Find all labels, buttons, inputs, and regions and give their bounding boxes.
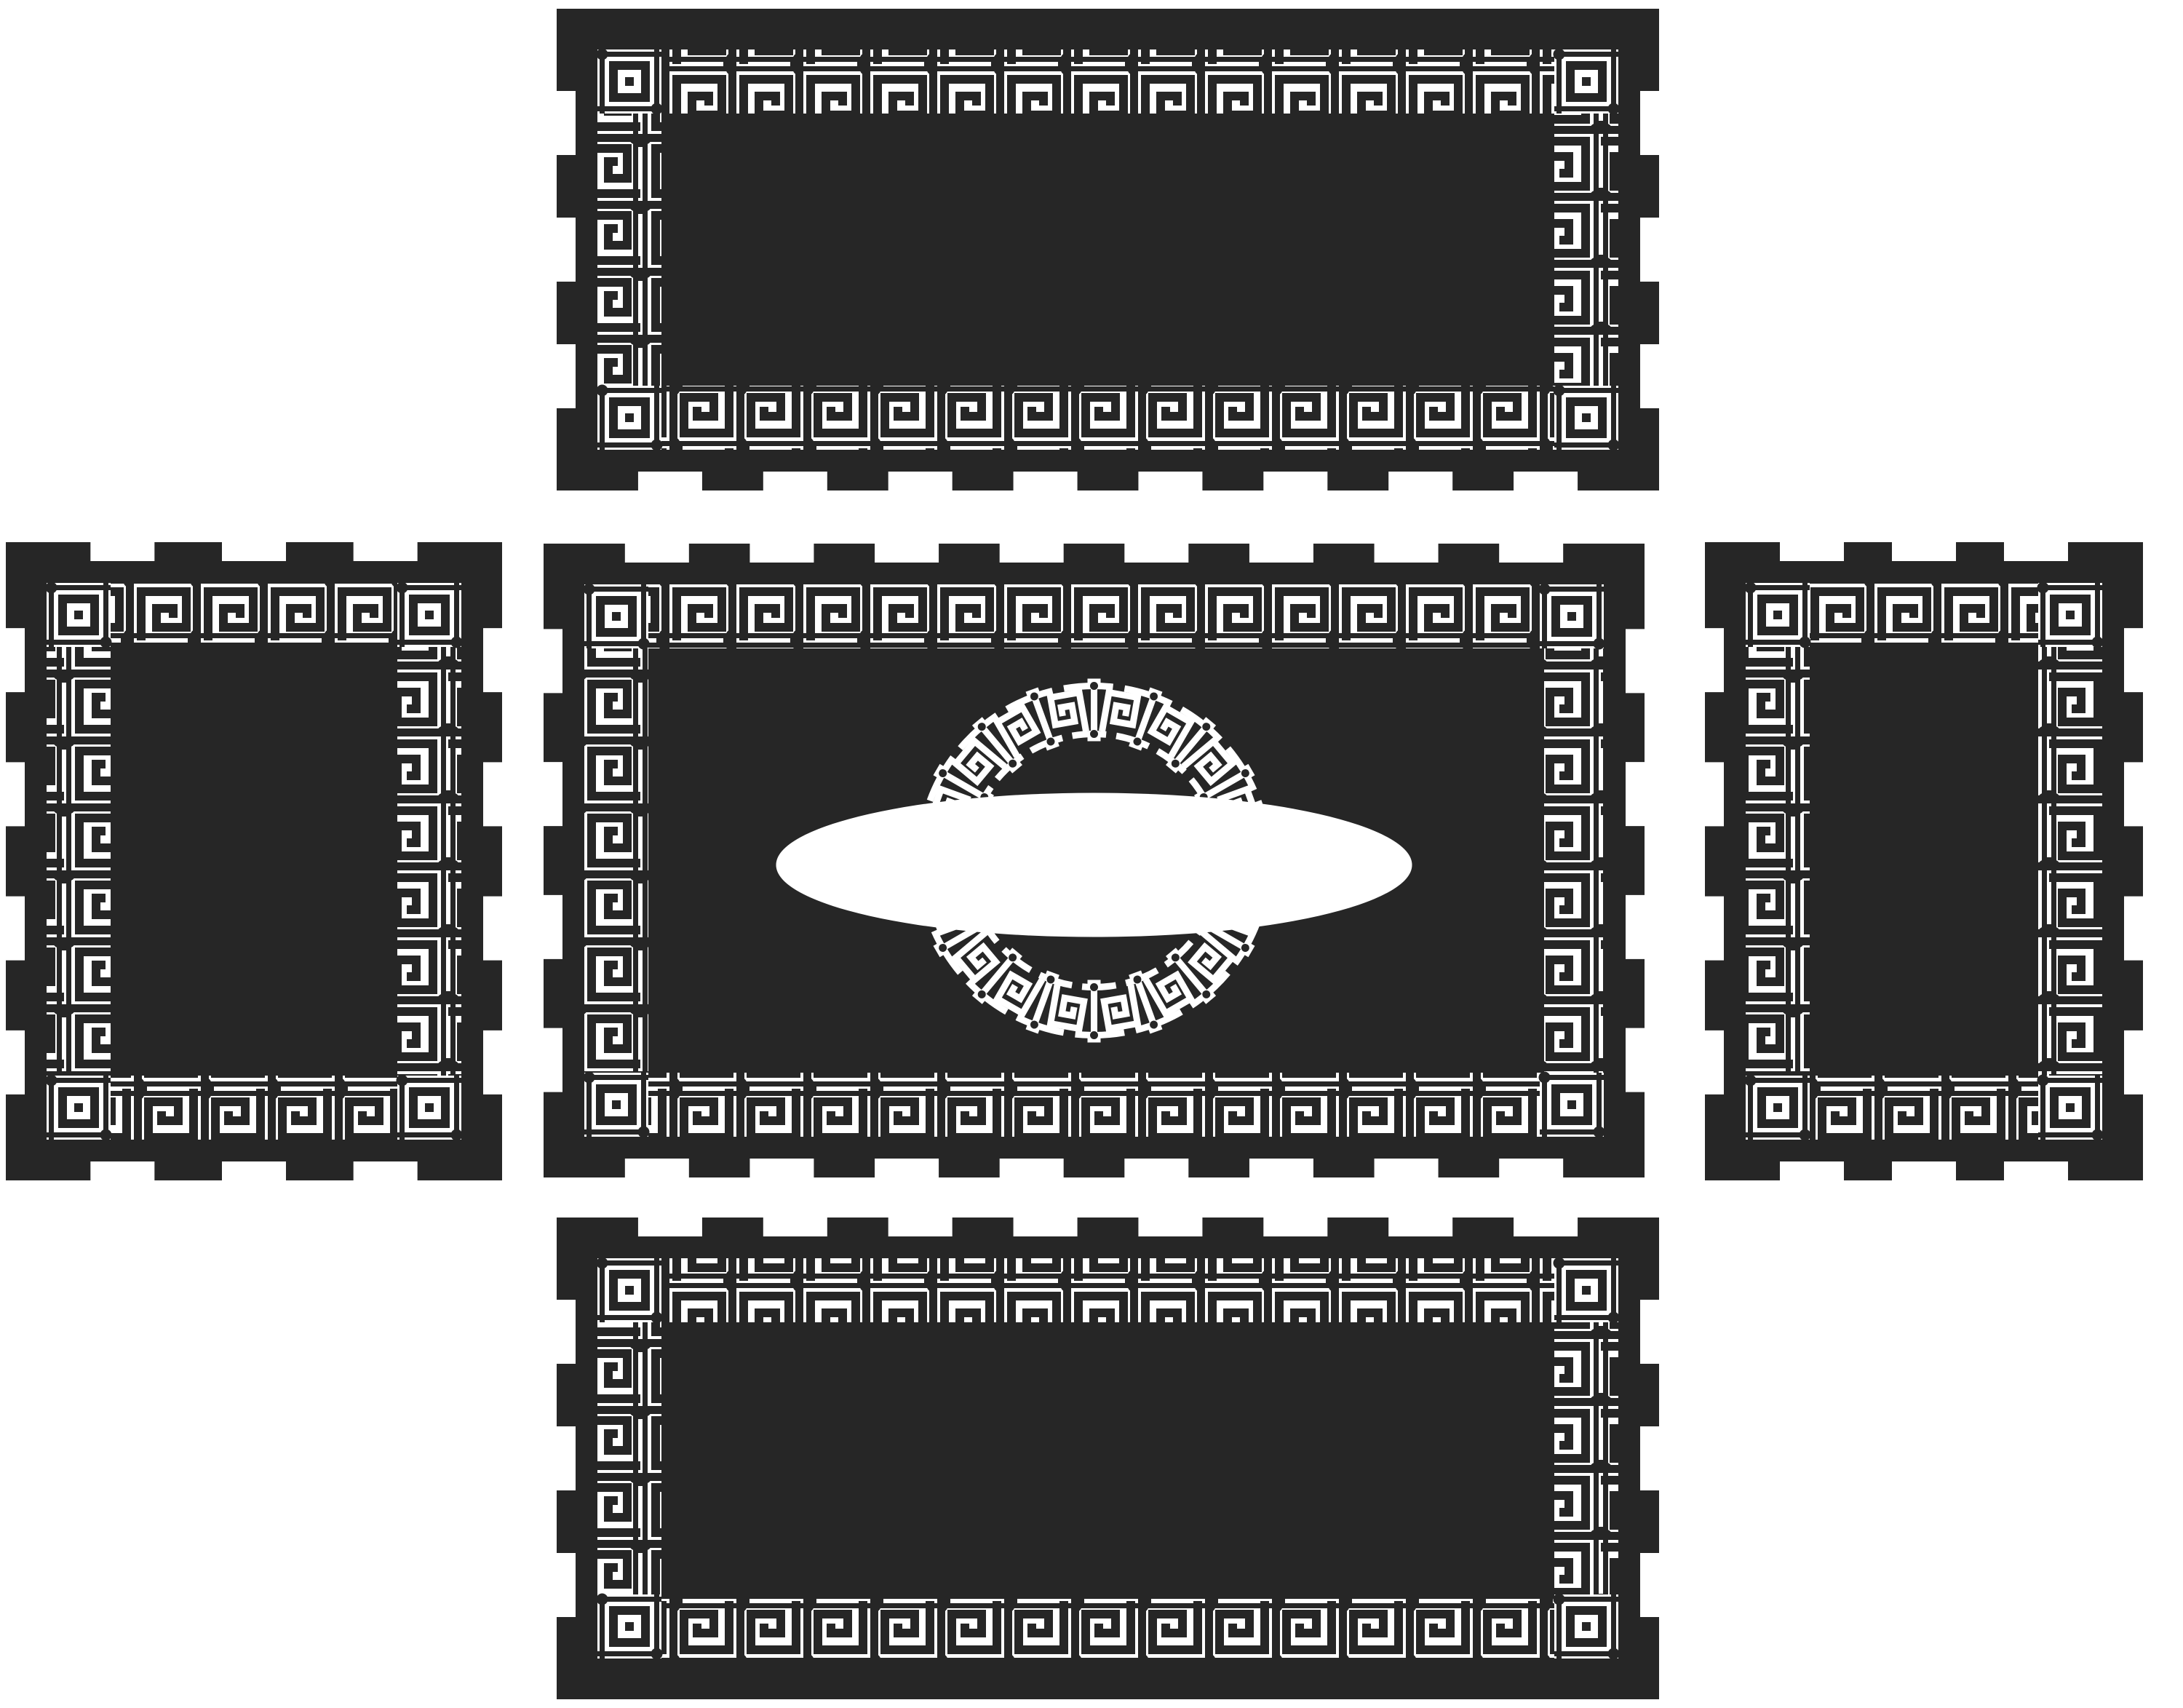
tissue-slot-oval (776, 793, 1412, 937)
panel-side-left (6, 542, 502, 1180)
panel-lid-top (557, 9, 1659, 490)
panel-side-right (1705, 542, 2143, 1180)
panels (6, 9, 2143, 1699)
panel-front-slot (544, 544, 1645, 1177)
panel-back-bottom (557, 1218, 1659, 1699)
laser-cut-sheet (0, 0, 2183, 1708)
sheet-svg (0, 0, 2183, 1708)
